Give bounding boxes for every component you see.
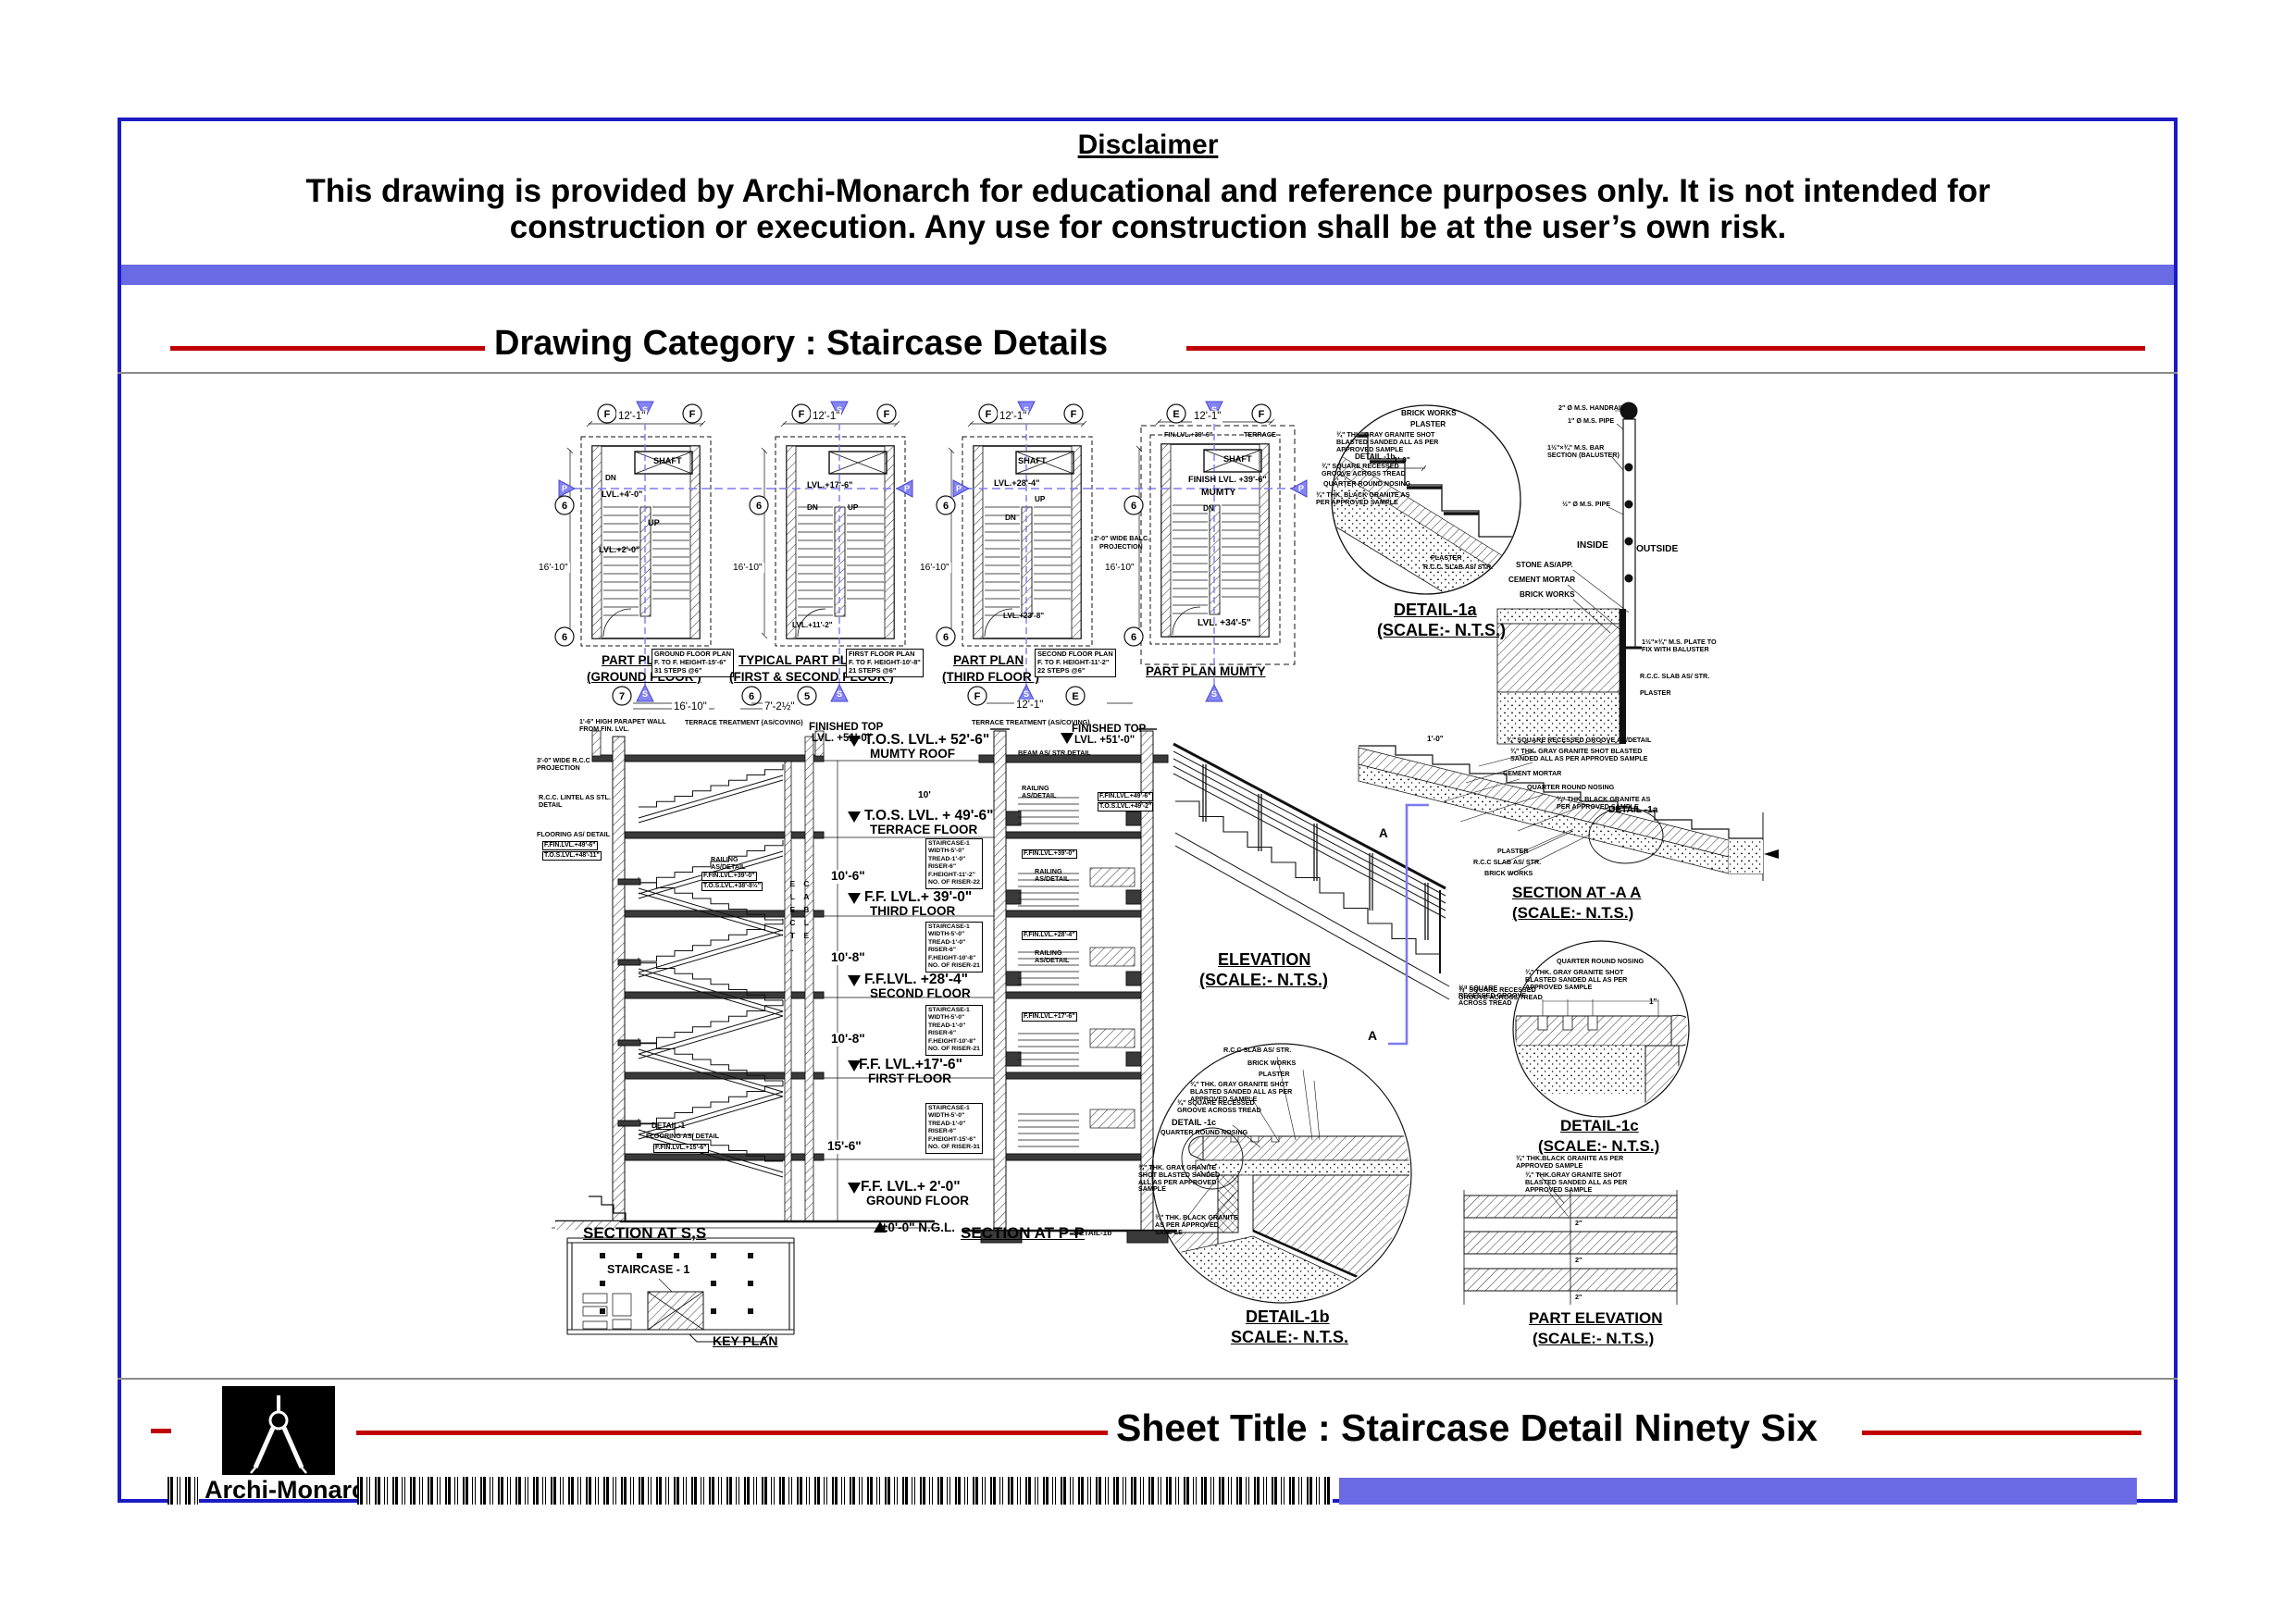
d1c-gray: ¾" THK. GRAY GRANITE SHOT BLASTED SANDED… bbox=[1525, 969, 1653, 990]
aa-plaster: PLASTER bbox=[1497, 848, 1529, 855]
plan3-width-dim: 12'-1" bbox=[998, 411, 1028, 423]
baluster-pipe1-label: 1" Ø M.S. PIPE bbox=[1568, 417, 1614, 425]
plan1-height-dim: 16'-10" bbox=[537, 563, 570, 573]
aa-scale: (SCALE:- N.T.S.) bbox=[1512, 905, 1633, 923]
part-plan-ground-art bbox=[567, 421, 711, 646]
plan4-balc-label-2: PROJECTION bbox=[1099, 543, 1143, 551]
plan4-dn-label: DN bbox=[1203, 504, 1214, 513]
plan3-level-a: LVL.+28'-4" bbox=[994, 478, 1040, 488]
plan4-height-dim: 16'-10" bbox=[1103, 563, 1136, 573]
drawing-category-title: Drawing Category : Staircase Details bbox=[494, 325, 1108, 364]
d1b-nosing: QUARTER ROUND NOSING bbox=[1160, 1129, 1247, 1136]
d1b-scale: SCALE:- N.T.S. bbox=[1231, 1329, 1348, 1347]
storey-dim-2: 10'-8" bbox=[829, 951, 867, 965]
svg-text:6: 6 bbox=[562, 632, 567, 643]
svg-text:F: F bbox=[884, 409, 890, 420]
d1b-square: ¾" SQUARE RECESSED GROOVE ACROSS TREAD bbox=[1177, 1099, 1275, 1114]
plan1-level-a: LVL.+4'-0" bbox=[602, 489, 642, 499]
aa-title: SECTION AT -A A bbox=[1512, 885, 1641, 902]
disclaimer-line-1: This drawing is provided by Archi-Monarc… bbox=[0, 174, 2296, 210]
svg-text:S: S bbox=[642, 689, 648, 699]
d1c-title: DETAIL-1c bbox=[1560, 1118, 1639, 1135]
ss-ffin49-box: F.FIN.LVL.+49'-6" bbox=[542, 841, 598, 850]
ss-ffin39-box: F.FIN.LVL.+39'-0" bbox=[701, 872, 757, 881]
pe-black: ¾" THK.BLACK GRANITE AS PER APPROVED SAM… bbox=[1516, 1155, 1625, 1170]
level-terrace-lvl: T.O.S. LVL. + 49'-6" bbox=[864, 808, 994, 824]
ss-tos48-box: T.O.S.LVL.+48'-11" bbox=[542, 851, 602, 861]
detail1a-black-granite-label: ¾" THK. BLACK GRANITE AS PER APPROVED SA… bbox=[1316, 491, 1412, 506]
storey-dim-4: 15'-6" bbox=[825, 1140, 863, 1154]
archi-monarch-logo bbox=[222, 1386, 335, 1475]
disclaimer-line-2: construction or execution. Any use for c… bbox=[0, 210, 2296, 246]
svg-text:F: F bbox=[1259, 409, 1265, 420]
footer-blue-bar bbox=[1339, 1478, 2137, 1505]
plan3-title-line1: PART PLAN bbox=[953, 654, 1024, 668]
svg-text:S: S bbox=[837, 689, 842, 699]
storey-dim-3: 10'-8" bbox=[829, 1033, 867, 1047]
spec-box-2: STAIRCASE-1WIDTH-5'-0"TREAD-1'-0"RISER-6… bbox=[925, 922, 983, 973]
d1b-brick: BRICK WORKS bbox=[1247, 1059, 1296, 1067]
pp-tos49-box: T.O.S.LVL.+49'-2" bbox=[1098, 802, 1153, 811]
plan4-terrace-label: TERRACE bbox=[1244, 431, 1276, 439]
svg-text:6: 6 bbox=[756, 501, 762, 512]
ss-title: SECTION AT S,S bbox=[583, 1225, 706, 1243]
pp-ffin28-box: F.FIN.LVL.+28'-4" bbox=[1022, 931, 1077, 940]
storey-dim-5: 10' bbox=[916, 790, 933, 800]
svg-text:7: 7 bbox=[619, 691, 625, 702]
level-third-lvl: F.F. LVL.+ 39'-0" bbox=[864, 889, 972, 905]
plan4-level-a: LVL. +34'-5" bbox=[1198, 618, 1251, 628]
elevation-title: ELEVATION bbox=[1218, 951, 1310, 970]
level-third-name: THIRD FLOOR bbox=[870, 905, 955, 919]
baluster-inside-label: INSIDE bbox=[1577, 540, 1608, 551]
aa-square-groove: ¾" SQUARE RECESSED GROOVE AS/DETAIL bbox=[1507, 737, 1651, 744]
barcode-strip bbox=[357, 1477, 1333, 1505]
pe-scale: (SCALE:- N.T.S.) bbox=[1533, 1331, 1654, 1348]
keyplan-staircase-label: STAIRCASE - 1 bbox=[607, 1264, 689, 1277]
detail1a-title: DETAIL-1a bbox=[1394, 601, 1477, 620]
level-ground-name: GROUND FLOOR bbox=[866, 1195, 969, 1208]
svg-text:P: P bbox=[1298, 484, 1304, 493]
plan1-level-b: LVL.+2'-0" bbox=[599, 545, 639, 554]
plan4-title: PART PLAN MUMTY bbox=[1146, 665, 1266, 679]
plan1-up-label: UP bbox=[648, 518, 660, 527]
svg-text:P: P bbox=[956, 484, 962, 493]
svg-text:S: S bbox=[1024, 689, 1029, 699]
shaft-text-cable: CABLE bbox=[801, 879, 810, 944]
svg-text:6: 6 bbox=[943, 632, 949, 643]
storey-dim-1: 10'-6" bbox=[829, 870, 867, 884]
plan3-level-b: LVL.+23'-8" bbox=[1003, 612, 1044, 620]
plan2-level-a: LVL.+17'-6" bbox=[807, 480, 853, 489]
pe-dim-3: 2" bbox=[1573, 1294, 1583, 1301]
d1c-nosing: QUARTER ROUND NOSING bbox=[1557, 958, 1644, 965]
detail1a-callout: DETAIL -1b bbox=[1355, 452, 1395, 461]
footer-red-line-right bbox=[1862, 1431, 2141, 1435]
ss-railing-note: RAILING AS/DETAIL bbox=[711, 856, 764, 871]
level-ground-lvl: F.F. LVL.+ 2'-0" bbox=[861, 1179, 961, 1195]
spec-box-3: STAIRCASE-1WIDTH-5'-0"TREAD-1'-0"RISER-6… bbox=[925, 1005, 983, 1056]
elevation-scale: (SCALE:- N.T.S.) bbox=[1199, 972, 1328, 990]
ss-flooring-note: FLOORING AS/ DETAIL bbox=[537, 831, 610, 838]
svg-text:E: E bbox=[1072, 691, 1078, 702]
svg-text:F: F bbox=[986, 409, 992, 420]
baluster-handrail-label: 2" Ø M.S. HANDRAIL bbox=[1558, 404, 1624, 412]
detail1a-plaster-label: PLASTER bbox=[1410, 420, 1446, 428]
footer-red-dash-left bbox=[151, 1429, 171, 1433]
d1b-rcc: R.C.C SLAB AS/ STR. bbox=[1223, 1047, 1291, 1054]
svg-text:F: F bbox=[974, 691, 981, 702]
pp-railing-note-3: RAILING AS/DETAIL bbox=[1035, 949, 1088, 964]
barcode-left-segment bbox=[168, 1477, 199, 1505]
aa-rcc: R.C.C SLAB AS/ STR. bbox=[1473, 859, 1541, 866]
pp-finished-top-1: FINISHED TOP bbox=[1072, 724, 1146, 736]
ss-lintel-note: R.C.C. LINTEL AS STL. DETAIL bbox=[539, 794, 611, 809]
disclaimer-title: Disclaimer bbox=[0, 130, 2296, 160]
baluster-rcc-label: R.C.C. SLAB AS/ STR. bbox=[1640, 673, 1709, 680]
baluster-brick-label: BRICK WORKS bbox=[1520, 590, 1575, 599]
svg-text:P: P bbox=[904, 484, 910, 493]
plan1-dn-label: DN bbox=[605, 474, 616, 482]
svg-text:F: F bbox=[689, 409, 696, 420]
level-mumty-roof-name: MUMTY ROOF bbox=[870, 748, 955, 762]
plan4-finish-level: FINISH LVL. +39'-6" bbox=[1188, 475, 1267, 484]
plan3-title-line2: (THIRD FLOOR ) bbox=[942, 671, 1039, 685]
level-first-lvl: F.F. LVL.+17'-6" bbox=[859, 1057, 962, 1072]
baluster-bar-label: 1½"×¾" M.S. BAR SECTION (BALUSTER) bbox=[1547, 444, 1625, 459]
ss-ffin15-box: F.FIN.LVL.+15'-6" bbox=[653, 1144, 709, 1153]
level-ngl: ±0'-0" N.G.L. bbox=[881, 1221, 955, 1235]
shaft-text-elect: ELECT. bbox=[788, 879, 796, 957]
part-plan-typical-art bbox=[762, 421, 905, 646]
d1c-scale: (SCALE:- N.T.S.) bbox=[1538, 1138, 1659, 1156]
level-second-lvl: F.F.LVL. +28'-4" bbox=[864, 972, 968, 987]
spec-box-1: STAIRCASE-1WIDTH-5'-0"TREAD-1'-0"RISER-6… bbox=[925, 838, 983, 889]
elevation-a-bottom: A bbox=[1368, 1029, 1377, 1043]
level-mumty-roof-lvl: T.O.S. LVL.+ 52'-6" bbox=[864, 732, 989, 748]
detail1a-square-groove-label: ¾" SQUARE RECESSED GROOVE ACROSS TREAD bbox=[1322, 463, 1425, 477]
ss-dim-2: 7'-2½" bbox=[763, 701, 797, 713]
svg-text:E: E bbox=[1173, 409, 1179, 420]
svg-text:P: P bbox=[562, 484, 567, 493]
detail1a-rcc-label: R.C.C. SLAB AS/ STR. bbox=[1423, 564, 1493, 571]
ss-terrace-treatment-note: TERRACE TREATMENT (AS/COVING) bbox=[685, 719, 803, 726]
plan3-up-label: UP bbox=[1035, 495, 1045, 503]
level-terrace-name: TERRACE FLOOR bbox=[870, 824, 977, 837]
ss-tos38-box: T.O.S.LVL.+38'-8½" bbox=[701, 882, 763, 891]
pe-dim-1: 2" bbox=[1573, 1220, 1583, 1227]
ss-detail1-callout: DETAIL-1 bbox=[652, 1121, 685, 1130]
baluster-plate-label: 1½"×¾" M.S. PLATE TO FIX WITH BALUSTER bbox=[1642, 638, 1727, 653]
detail1a-nosing-label: QUARTER ROUND NOSING bbox=[1323, 480, 1410, 488]
svg-text:6: 6 bbox=[943, 501, 949, 512]
svg-text:S: S bbox=[1211, 689, 1217, 699]
svg-text:6: 6 bbox=[1131, 501, 1136, 512]
baluster-stone-label: STONE AS/APP. bbox=[1516, 561, 1573, 569]
aa-brick: BRICK WORKS bbox=[1484, 870, 1533, 877]
levels-finished-top-2: LVL. +51'-0" bbox=[812, 733, 872, 745]
plan1-note-box: GROUND FLOOR PLANF. TO F. HEIGHT-15'-6"3… bbox=[652, 649, 734, 677]
d1b-black: ¾" THK. BLACK GRANITE AS PER APPROVED SA… bbox=[1155, 1214, 1246, 1235]
d1b-title: DETAIL-1b bbox=[1246, 1308, 1330, 1327]
baluster-outside-label: OUTSIDE bbox=[1636, 544, 1678, 554]
plan3-dn-label: DN bbox=[1005, 514, 1016, 522]
plan2-up-label: UP bbox=[848, 503, 858, 512]
sheet-title: Sheet Title : Staircase Detail Ninety Si… bbox=[1116, 1407, 1818, 1449]
pp-railing-note-2: RAILING AS/DETAIL bbox=[1035, 868, 1088, 883]
plan2-width-dim: 12'-1" bbox=[811, 411, 841, 423]
pp-finished-top-2: LVL. +51'-0" bbox=[1074, 735, 1135, 747]
elevation-a-top: A bbox=[1379, 827, 1388, 841]
baluster-cement-label: CEMENT MORTAR bbox=[1508, 576, 1575, 584]
detail1a-scale: (SCALE:- N.T.S.) bbox=[1377, 622, 1506, 640]
plan2-dn-label: DN bbox=[807, 503, 818, 512]
baluster-plaster-label: PLASTER bbox=[1640, 689, 1671, 697]
plan2-note-box: FIRST FLOOR PLANF. TO F. HEIGHT-10'-8"21… bbox=[846, 649, 924, 677]
plan2-level-b: LVL.+11'-2" bbox=[792, 621, 833, 629]
level-first-name: FIRST FLOOR bbox=[868, 1072, 951, 1086]
pe-title: PART ELEVATION bbox=[1529, 1310, 1663, 1328]
plan4-fin-top-label: FIN.LVL.+39'-6" bbox=[1164, 431, 1212, 439]
d1b-plaster: PLASTER bbox=[1259, 1071, 1290, 1078]
detail1a-brick-label: BRICK WORKS bbox=[1401, 409, 1457, 417]
pp-railing-note-1: RAILING AS/DETAIL bbox=[1022, 785, 1075, 799]
pp-ffin49-box: F.FIN.LVL.+49'-6" bbox=[1098, 792, 1153, 801]
footer-red-line-left bbox=[356, 1431, 1108, 1435]
ss-flooring-note-2: FLOORING AS/ DETAIL bbox=[646, 1133, 719, 1140]
d1c-dim: 1" bbox=[1649, 997, 1657, 1006]
detail1a-gray-granite-label: ¾" THK. GRAY GRANITE SHOT BLASTED SANDED… bbox=[1336, 431, 1458, 452]
pp-ffin39-box: F.FIN.LVL.+39'-0" bbox=[1022, 849, 1077, 859]
svg-text:F: F bbox=[604, 409, 611, 420]
pp-beam-note: BEAM AS/ STR.DETAIL bbox=[1018, 750, 1091, 757]
ss-parapet-note: 1'-6" HIGH PARAPET WALL FROM FIN. LVL. bbox=[579, 718, 679, 733]
pe-dim-2: 2" bbox=[1573, 1257, 1583, 1264]
brand-name: Archi-Monarch bbox=[205, 1477, 381, 1505]
plan3-shaft-label: SHAFT bbox=[1018, 456, 1047, 465]
svg-text:6: 6 bbox=[1131, 632, 1136, 643]
svg-text:6: 6 bbox=[749, 691, 754, 702]
plan4-width-dim: 12'-1" bbox=[1192, 411, 1222, 423]
svg-text:F: F bbox=[799, 409, 805, 420]
spec-box-4: STAIRCASE-1WIDTH-5'-0"TREAD-1'-0"RISER-6… bbox=[925, 1103, 983, 1154]
plan1-width-dim: 12'-1" bbox=[616, 411, 647, 423]
key-plan-art bbox=[567, 1238, 794, 1342]
pe-gray: ¾" THK.GRAY GRANITE SHOT BLASTED SANDED … bbox=[1525, 1171, 1644, 1193]
ss-projection-note: 3'-0" WIDE R.C.C PROJECTION bbox=[537, 757, 609, 772]
plan4-balc-label-1: 2'-0" WIDE BALC. bbox=[1094, 535, 1149, 542]
plan3-note-box: SECOND FLOOR PLANF. TO F. HEIGHT-11'-2"2… bbox=[1035, 649, 1116, 677]
plan4-mumty-label: MUMTY bbox=[1201, 488, 1235, 498]
svg-text:6: 6 bbox=[562, 501, 567, 512]
pp-dim: 12'-1" bbox=[1014, 700, 1045, 712]
pp-title: SECTION AT P-P bbox=[961, 1225, 1085, 1243]
plan4-shaft-label: SHAFT bbox=[1223, 454, 1252, 464]
baluster-pipe2-label: ½" Ø M.S. PIPE bbox=[1562, 501, 1610, 508]
aa-detail1a-callout: DETAIL -1a bbox=[1608, 805, 1657, 815]
d1c-square: ¾" SQUARE RECESSED GROOVE ACROSS TREAD bbox=[1458, 985, 1531, 1006]
plan1-shaft-label: SHAFT bbox=[653, 456, 682, 465]
aa-nosing: QUARTER ROUND NOSING bbox=[1527, 784, 1614, 791]
d1b-gray-2: ¾" THK. GRAY GRANITE SHOT BLASTED SANDED… bbox=[1138, 1164, 1229, 1193]
level-second-name: SECOND FLOOR bbox=[870, 987, 971, 1001]
svg-text:F: F bbox=[1071, 409, 1077, 420]
svg-text:5: 5 bbox=[804, 691, 810, 702]
ss-dim-1: 16'-10" bbox=[672, 701, 709, 713]
section-aa-art bbox=[1359, 746, 1779, 881]
aa-cement: CEMENT MORTAR bbox=[1503, 770, 1561, 777]
pp-ffin17-box: F.FIN.LVL.+17'-6" bbox=[1022, 1012, 1077, 1022]
plan3-height-dim: 16'-10" bbox=[918, 563, 951, 573]
d1b-callout: DETAIL -1c bbox=[1172, 1118, 1216, 1127]
plan2-height-dim: 16'-10" bbox=[731, 563, 764, 573]
detail1a-plaster2-label: PLASTER bbox=[1431, 554, 1462, 562]
aa-gray-granite: ¾" THK. GRAY GRANITE SHOT BLASTED SANDED… bbox=[1510, 748, 1649, 762]
aa-dim: 1'-0" bbox=[1427, 735, 1444, 743]
keyplan-title: KEY PLAN bbox=[713, 1334, 778, 1348]
